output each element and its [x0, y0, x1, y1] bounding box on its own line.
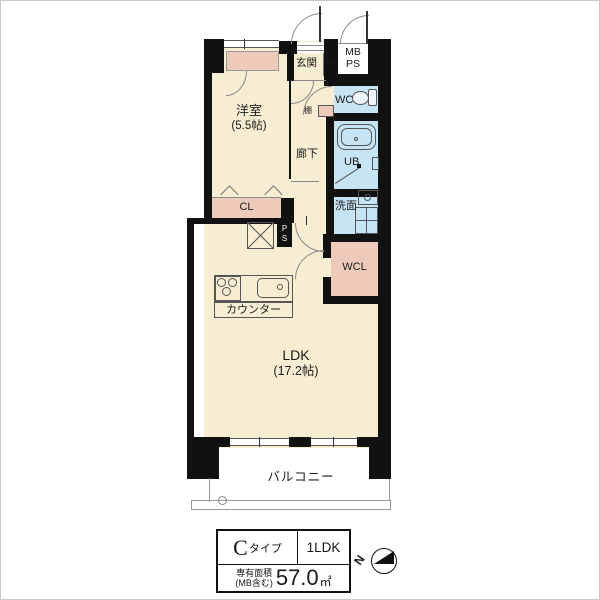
legend-layout-cell: 1LDK	[298, 531, 349, 564]
ldk-size: (17.2帖)	[231, 365, 361, 379]
window-mullion	[259, 437, 260, 447]
genkan-label: 玄関	[296, 58, 317, 70]
shelf-box	[318, 105, 334, 117]
storage-strip-yoshitsu	[226, 51, 279, 71]
refrigerator-x-icon	[247, 222, 274, 249]
balcony-label: バルコニー	[251, 471, 351, 485]
yoshitsu-size: (5.5帖)	[214, 120, 284, 133]
wall-segment	[323, 242, 331, 258]
wall-segment	[326, 111, 334, 236]
shelf-label: 棚	[304, 107, 312, 116]
mb-label: MB	[345, 46, 361, 58]
sink-icon	[257, 278, 289, 298]
cl-label: CL	[212, 201, 281, 213]
wcl-label: WCL	[331, 261, 378, 273]
burner-icon	[228, 278, 237, 287]
ps-top-label: PS	[346, 58, 360, 70]
yoshitsu-label: 洋室	[219, 104, 279, 118]
mbps-door-leaf	[366, 11, 368, 44]
wall-segment	[287, 44, 294, 81]
bathtub-drain-icon	[354, 137, 358, 141]
legend-area-title: 専有面積	[236, 568, 272, 578]
window-mullion	[244, 39, 245, 49]
balcony-rail	[390, 500, 391, 509]
ldk-label: LDK	[231, 348, 361, 363]
compass-north-label: N	[351, 552, 367, 567]
faucet-icon	[277, 284, 283, 290]
balcony-rail	[389, 479, 390, 501]
ldk-door-jamb	[306, 216, 307, 225]
legend-area-unit: ㎡	[320, 573, 332, 590]
legend-type-cell: C タイプ	[218, 531, 297, 564]
ps-shaft-box: PS	[277, 220, 292, 247]
wall-segment	[187, 218, 194, 448]
ps-shaft-label: PS	[280, 224, 289, 244]
ub-basin-icon	[372, 157, 379, 170]
toilet-bowl-icon	[352, 91, 369, 105]
balcony-drain-icon	[218, 496, 227, 505]
rouka-label: 廊下	[296, 148, 318, 160]
wall-segment	[378, 86, 391, 446]
legend-type-letter: C	[233, 535, 248, 561]
burner-icon	[222, 287, 231, 296]
entrance-door-leaf	[319, 6, 321, 42]
wall-segment	[323, 234, 391, 242]
balcony-rail	[191, 509, 391, 510]
window-yoshitsu	[224, 40, 279, 48]
balcony-rail	[191, 500, 192, 509]
mbps-door-arc	[340, 15, 369, 44]
threshold-line	[297, 45, 324, 46]
legend-area-value: 57.0	[276, 565, 319, 591]
washer-drain-icon	[364, 194, 371, 201]
window-ldk-right	[311, 438, 357, 446]
wc-label: WC	[335, 94, 353, 106]
wall-segment	[204, 39, 212, 219]
legend-area-labels: 専有面積 (MB含む)	[235, 568, 273, 589]
floorplan-image: カウンター PS 棚 洋室 (5.5帖) 玄関 SB MB PS WC 廊下 U…	[0, 0, 600, 600]
yoshitsu-door-line	[291, 181, 319, 182]
wall-segment	[323, 277, 331, 297]
wall-pier-left	[187, 445, 219, 479]
wall-segment	[326, 113, 391, 121]
senmen-label: 洗面	[335, 200, 357, 212]
legend-area-cell: 専有面積 (MB含む) 57.0 ㎡	[218, 565, 349, 591]
wall-segment	[289, 437, 311, 447]
balcony-rail	[209, 478, 210, 502]
legend-layout: 1LDK	[307, 540, 341, 555]
toilet-tank-icon	[368, 89, 377, 106]
legend-table: C タイプ 1LDK 専有面積 (MB含む) 57.0 ㎡	[216, 529, 351, 593]
threshold-line	[297, 50, 324, 51]
legend-type-suffix: タイプ	[249, 540, 282, 556]
legend-area-note: (MB含む)	[235, 578, 273, 588]
burner-icon	[217, 278, 226, 287]
counter-label: カウンター	[214, 304, 293, 316]
wall-segment	[324, 74, 391, 86]
vanity-cross-v	[366, 207, 367, 234]
ub-label: UB	[344, 156, 359, 168]
window-mullion	[333, 437, 334, 447]
entrance-door-arc	[291, 13, 322, 44]
mbps-label: MB PS	[338, 47, 368, 70]
sb-label: SB	[323, 57, 338, 66]
wall-segment	[323, 296, 391, 304]
wall-pier-right	[369, 445, 391, 479]
